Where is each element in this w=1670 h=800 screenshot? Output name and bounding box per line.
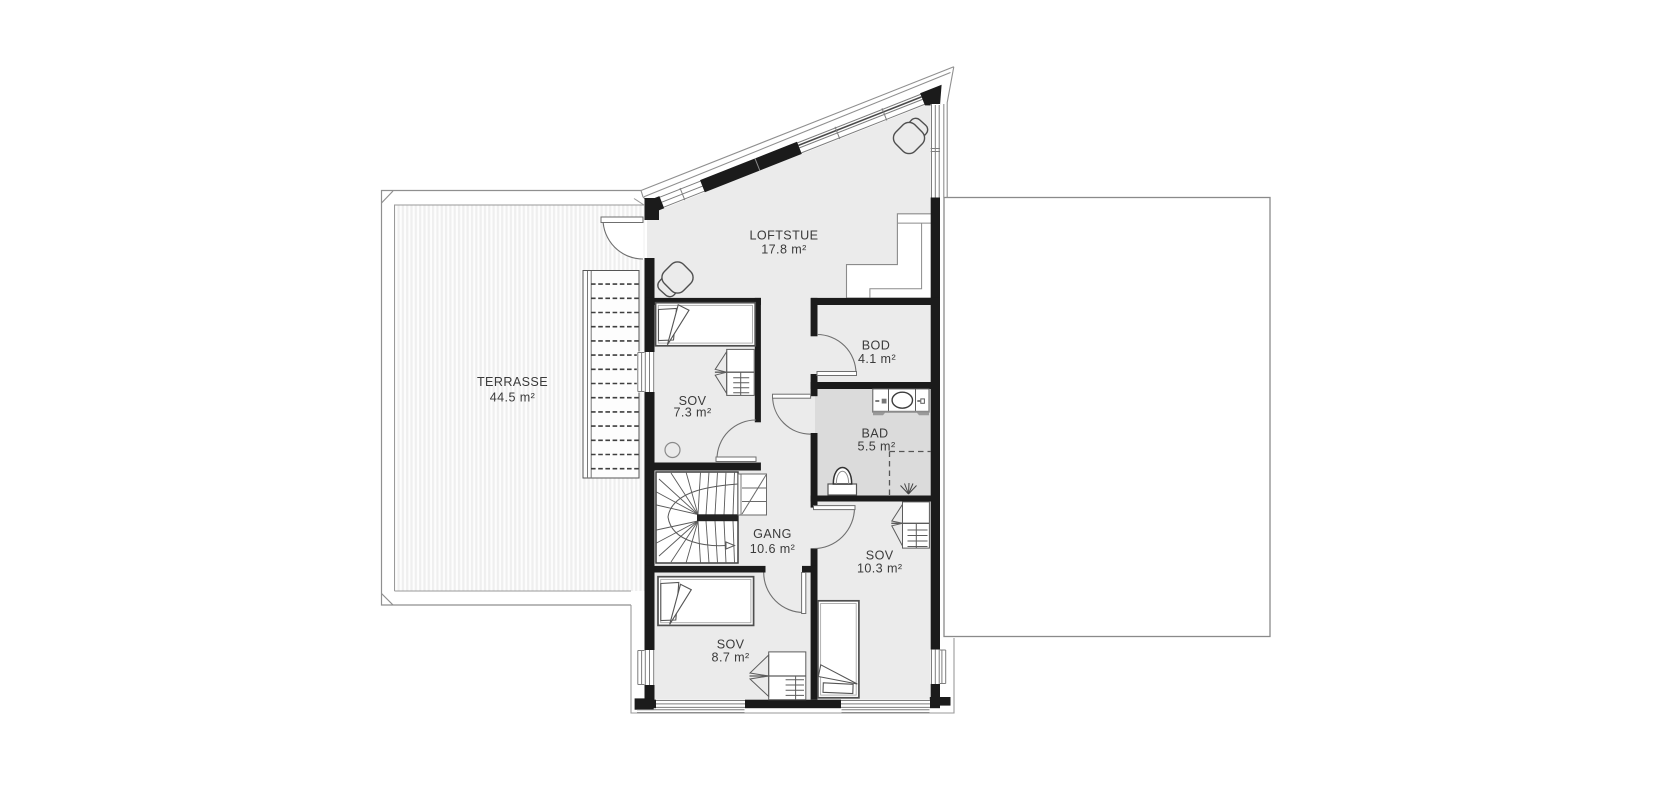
- svg-text:10.3 m²: 10.3 m²: [857, 562, 903, 576]
- svg-text:17.8 m²: 17.8 m²: [761, 243, 807, 257]
- svg-text:GANG: GANG: [753, 527, 792, 541]
- svg-text:7.3 m²: 7.3 m²: [673, 406, 711, 420]
- svg-text:LOFTSTUE: LOFTSTUE: [750, 229, 819, 243]
- svg-text:8.7 m²: 8.7 m²: [712, 651, 750, 665]
- svg-text:5.5 m²: 5.5 m²: [857, 440, 895, 454]
- svg-text:BOD: BOD: [862, 339, 891, 353]
- svg-text:TERRASSE: TERRASSE: [477, 375, 548, 389]
- svg-text:4.1 m²: 4.1 m²: [858, 352, 896, 366]
- svg-text:10.6 m²: 10.6 m²: [750, 542, 796, 556]
- svg-text:BAD: BAD: [861, 427, 888, 441]
- svg-text:SOV: SOV: [717, 638, 745, 652]
- svg-text:44.5 m²: 44.5 m²: [490, 391, 536, 405]
- svg-text:SOV: SOV: [866, 549, 894, 563]
